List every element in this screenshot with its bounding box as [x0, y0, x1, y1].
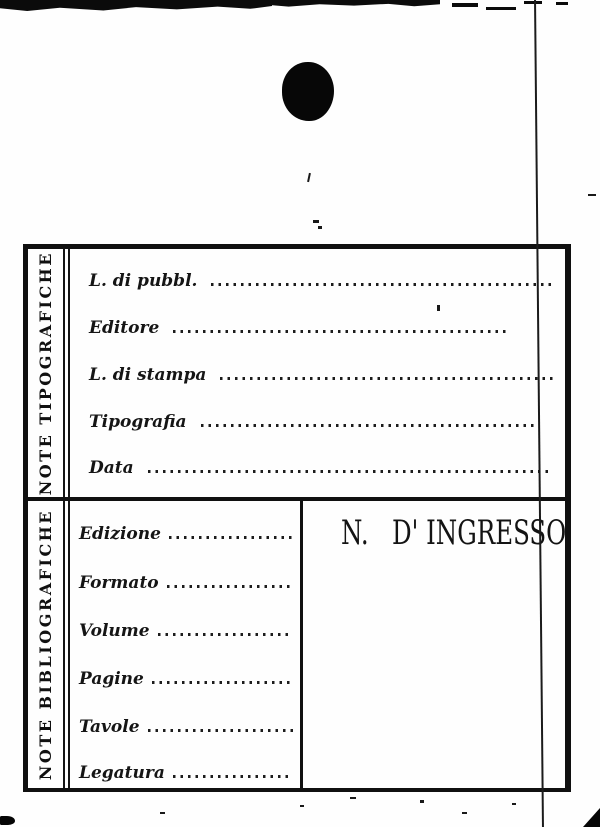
field-label: L. di pubbl.	[89, 271, 197, 291]
field-row: L. di stampa	[89, 365, 565, 387]
scanned-library-card-page: NOTE TIPOGRAFICHE L. di pubbl. Editore L…	[0, 0, 600, 827]
accession-number-cell: N. D' INGRESSO	[303, 501, 565, 788]
accession-number-heading: N. D' INGRESSO	[341, 513, 566, 553]
scan-edge-dash	[556, 2, 568, 5]
scan-corner-mark	[0, 816, 15, 825]
field-label: Edizione	[79, 524, 161, 544]
field-row: Edizione	[79, 524, 300, 546]
scan-edge-dash	[524, 1, 542, 4]
field-label: Tavole	[79, 717, 140, 737]
scan-speck	[318, 226, 322, 229]
fill-in-dotted-line	[167, 585, 293, 588]
field-row: Editore	[89, 318, 565, 340]
field-row: Legatura	[79, 763, 300, 785]
side-label-column: NOTE TIPOGRAFICHE	[28, 249, 63, 497]
fill-in-dotted-line	[158, 633, 293, 636]
field-label: Pagine	[79, 669, 144, 689]
field-row: Tavole	[79, 717, 300, 739]
scan-edge-band	[268, 0, 440, 7]
fill-in-dotted-line	[173, 330, 509, 333]
fields-area: L. di pubbl. Editore L. di stampa Tipogr…	[70, 249, 565, 497]
scan-speck	[313, 220, 319, 223]
field-label: Data	[89, 458, 134, 478]
double-rule-divider	[63, 501, 70, 788]
scan-edge-dash	[452, 3, 478, 7]
scan-speck	[300, 805, 304, 807]
scan-corner-shadow	[583, 808, 600, 827]
scan-speck	[420, 800, 424, 803]
hole-punch-icon	[282, 62, 334, 121]
field-row: Data	[89, 458, 565, 480]
catalog-card-table: NOTE TIPOGRAFICHE L. di pubbl. Editore L…	[23, 244, 571, 792]
section-note-bibliografiche: NOTE BIBLIOGRAFICHE Edizione Formato Vol…	[28, 501, 565, 788]
scan-speck	[512, 803, 516, 805]
field-label: Editore	[89, 318, 159, 338]
fill-in-dotted-line	[169, 536, 293, 539]
fill-in-dotted-line	[173, 775, 293, 778]
field-label: L. di stampa	[89, 365, 206, 385]
scan-speck	[462, 812, 467, 814]
fields-area: Edizione Formato Volume Pagine Tavole	[70, 501, 300, 788]
side-label-column: NOTE BIBLIOGRAFICHE	[28, 501, 63, 788]
field-row: Volume	[79, 621, 300, 643]
section-title-vertical: NOTE BIBLIOGRAFICHE	[36, 509, 55, 780]
fill-in-dotted-line	[211, 283, 551, 286]
field-label: Legatura	[79, 763, 165, 783]
scan-edge-band	[0, 0, 272, 11]
fill-in-dotted-line	[220, 377, 553, 380]
field-row: Tipografia	[89, 412, 565, 434]
field-row: Pagine	[79, 669, 300, 691]
scan-speck	[588, 194, 596, 196]
field-label: Volume	[79, 621, 150, 641]
section-note-tipografiche: NOTE TIPOGRAFICHE L. di pubbl. Editore L…	[28, 249, 565, 497]
double-rule-divider	[63, 249, 70, 497]
scan-speck	[350, 797, 356, 799]
fill-in-dotted-line	[148, 470, 552, 473]
scan-speck	[160, 812, 165, 814]
fill-in-dotted-line	[148, 729, 293, 732]
field-row: Formato	[79, 573, 300, 595]
fill-in-dotted-line	[201, 424, 534, 427]
field-label: Formato	[79, 573, 159, 593]
section-title-vertical: NOTE TIPOGRAFICHE	[36, 251, 55, 495]
field-row: L. di pubbl.	[89, 271, 565, 293]
fill-in-dotted-line	[152, 681, 293, 684]
field-label: Tipografia	[89, 412, 187, 432]
scan-speck	[307, 173, 311, 182]
scan-edge-dash	[486, 7, 516, 10]
